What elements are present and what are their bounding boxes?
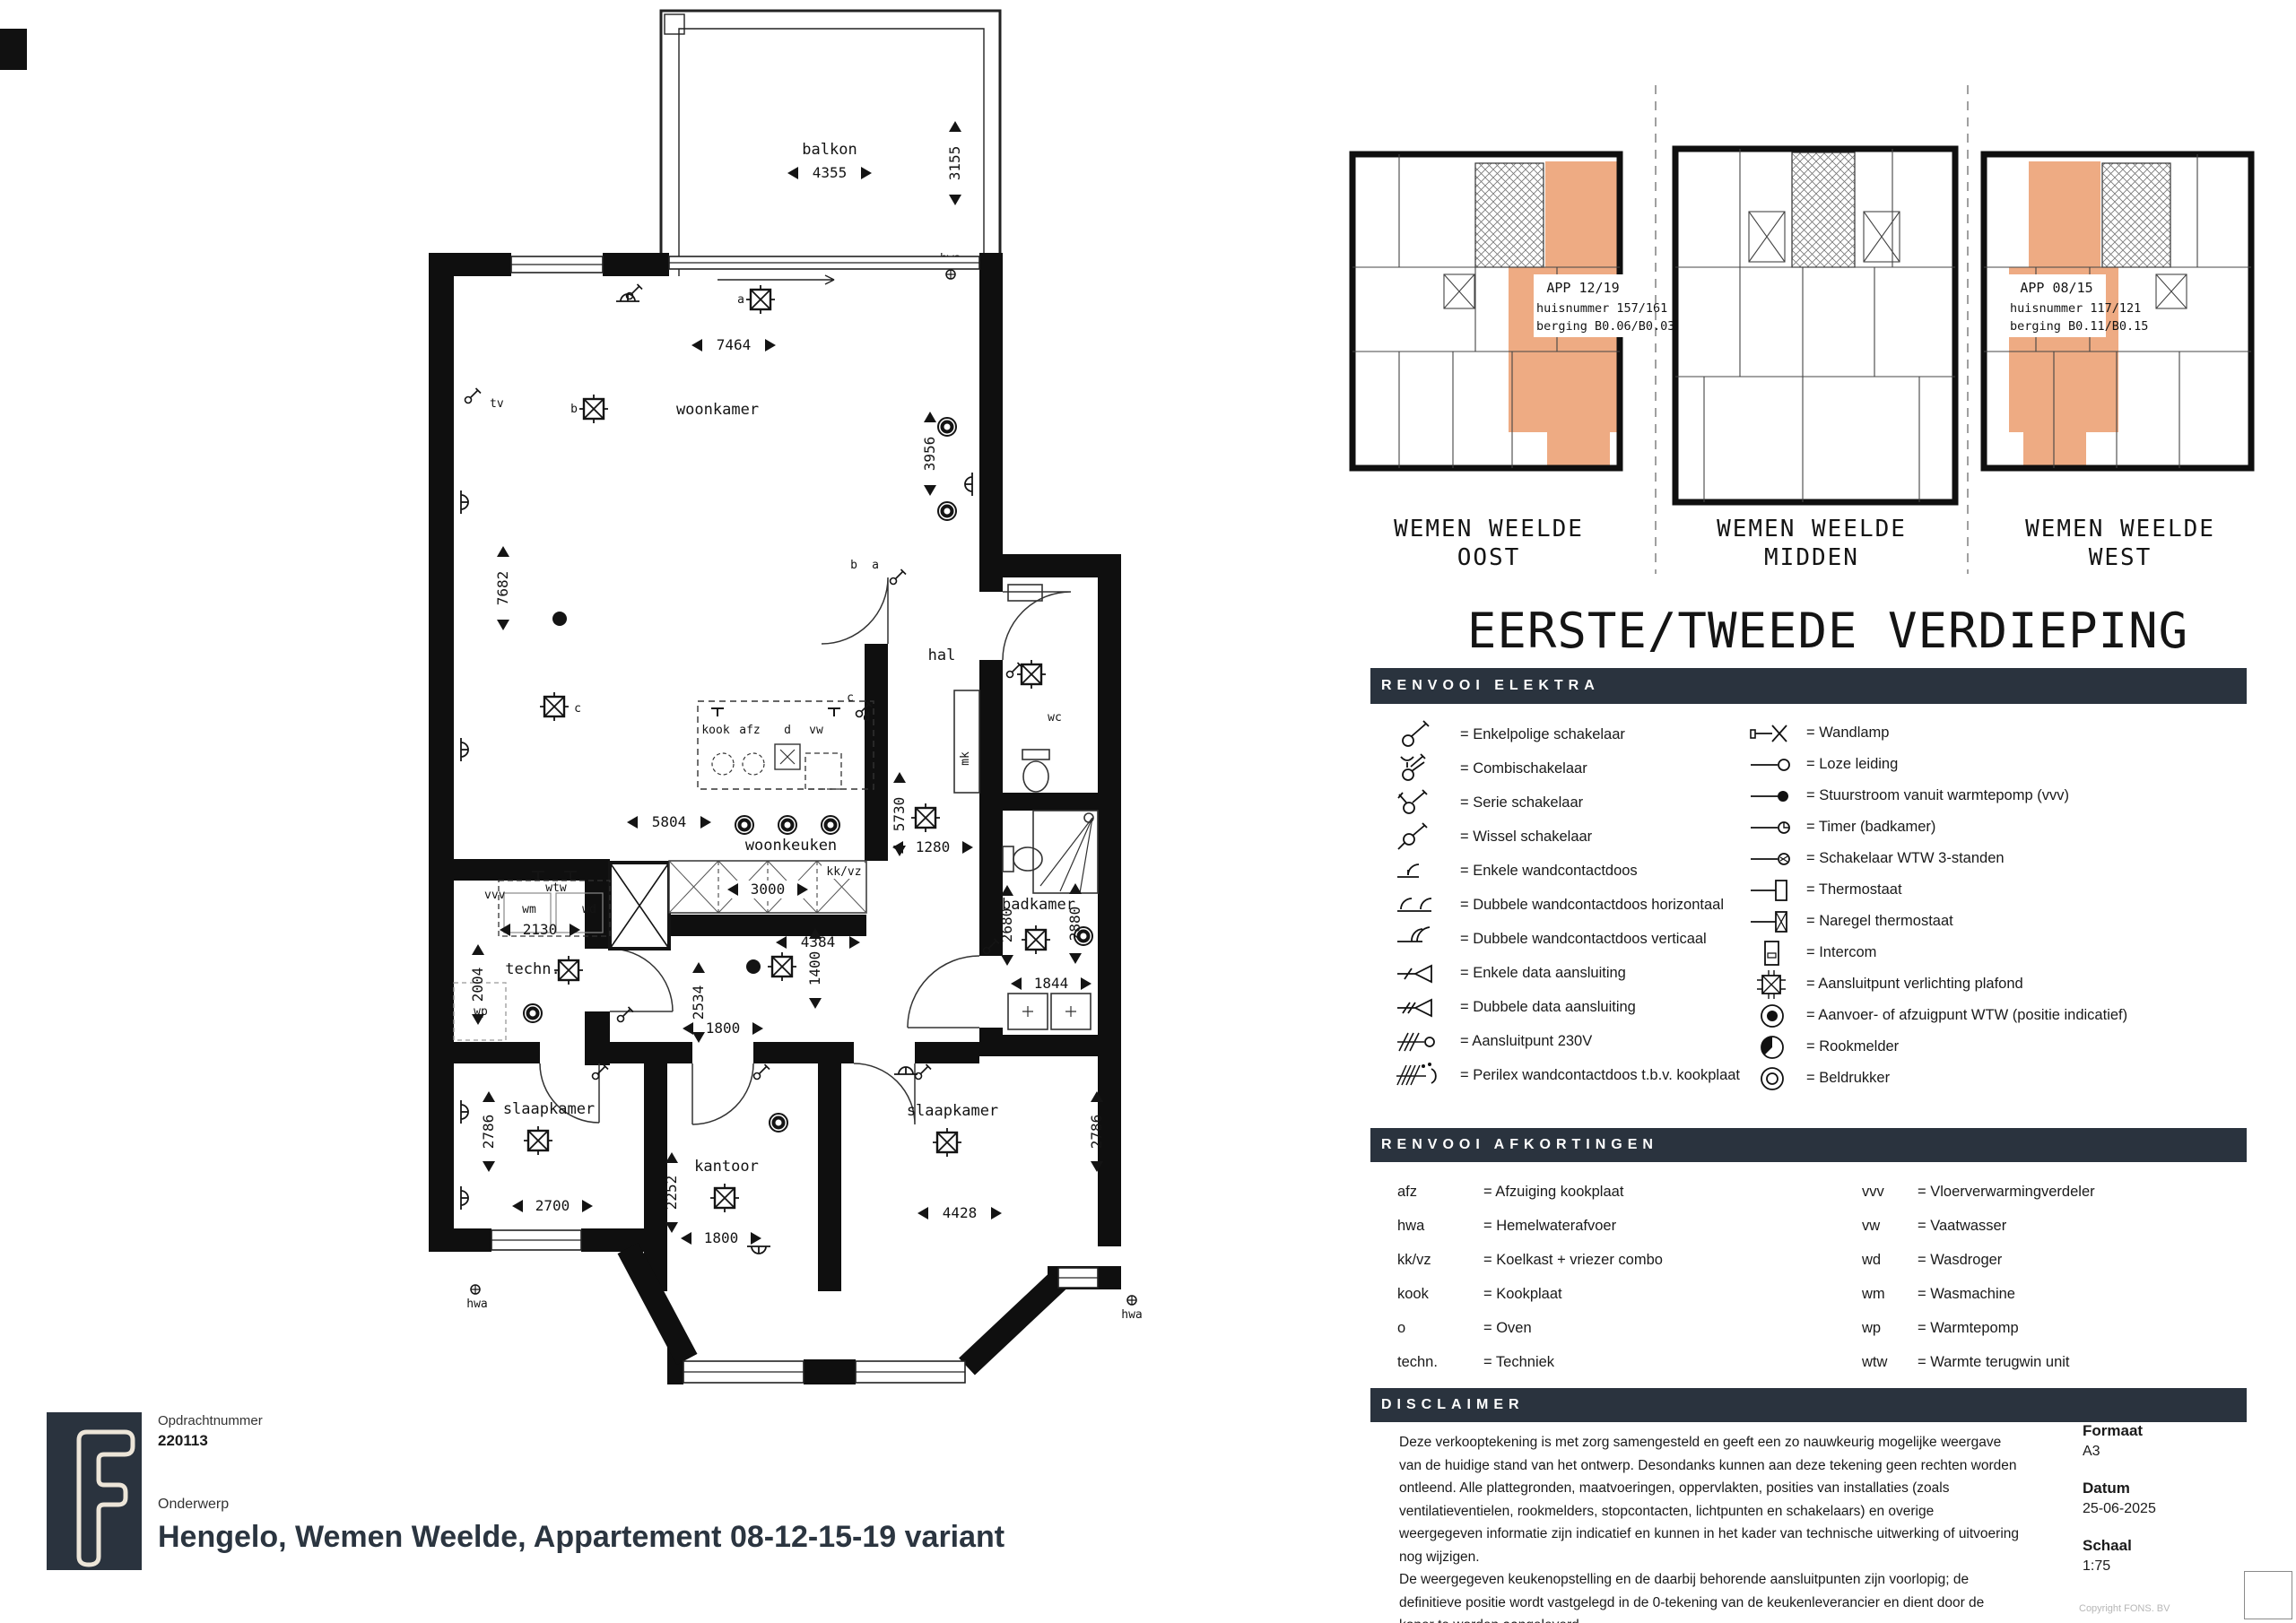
- dim-value: 3155: [946, 146, 963, 181]
- legend-label: = Thermostaat: [1806, 881, 1902, 898]
- section-label-midden-2: MIDDEN: [1764, 544, 1859, 571]
- abbr-row: hwa= Hemelwaterafvoer: [1370, 1209, 1663, 1243]
- room-label-kantoor: kantoor: [694, 1158, 759, 1176]
- section-label-oost-2: OOST: [1457, 544, 1521, 571]
- label-wtw: wtw: [545, 881, 567, 895]
- legend-label: = Intercom: [1806, 944, 1876, 961]
- label-kook: kook: [701, 724, 729, 737]
- label-hwa-right: hwa: [1121, 1308, 1142, 1322]
- legend-row: = Dubbele data aansluiting: [1370, 990, 1740, 1024]
- legend-row: = Timer (badkamer): [1749, 811, 2127, 843]
- letter-b2: b: [850, 559, 857, 572]
- schakelaar-wtw-icon: [1749, 844, 1796, 874]
- abbr-meaning: = Koelkast + vriezer combo: [1483, 1252, 1663, 1269]
- legend-label: = Dubbele data aansluiting: [1460, 999, 1636, 1016]
- abbr-row: vw= Vaatwasser: [1862, 1209, 2095, 1243]
- disclaimer-paragraph-1: Deze verkooptekening is met zorg samenge…: [1399, 1431, 2020, 1568]
- dim-value: 2786: [1088, 1115, 1105, 1150]
- abbr-row: wp= Warmtepomp: [1862, 1311, 2095, 1345]
- room-label-wc: wc: [1048, 711, 1062, 725]
- company-logo: [47, 1412, 142, 1570]
- label-d: d: [784, 724, 791, 737]
- legend-row: = Aansluitpunt 230V: [1370, 1024, 1740, 1058]
- rookmelder-icon: [1749, 1032, 1796, 1063]
- dim-value: 2130: [523, 921, 558, 938]
- abbr: hwa: [1370, 1218, 1483, 1235]
- shaft: [610, 863, 669, 949]
- dim-balkon-h: 3155: [946, 121, 963, 205]
- meterkast: [954, 690, 979, 793]
- legend-label: = Loze leiding: [1806, 756, 1898, 773]
- legend-afkortingen-body: afz= Afzuiging kookplaat hwa= Hemelwater…: [1370, 1175, 2247, 1381]
- letter-c: c: [574, 702, 581, 716]
- abbr-row: vvv= Vloerverwarmingverdeler: [1862, 1175, 2095, 1209]
- opdrachtnummer-value: 220113: [158, 1432, 1004, 1450]
- legend-label: = Aansluitpunt verlichting plafond: [1806, 976, 2023, 993]
- section-label-oost-1: WEMEN WEELDE: [1394, 516, 1584, 542]
- dim-value: 2680: [998, 908, 1015, 943]
- label-wm: wm: [522, 903, 536, 916]
- dim-value: 1280: [916, 838, 951, 855]
- abbr-row: techn.= Techniek: [1370, 1345, 1663, 1379]
- block-oost: APP 12/19 huisnummer 157/161 berging B0.…: [1352, 154, 1674, 468]
- dim-balkon-w: 4355: [787, 164, 872, 181]
- block-west: APP 08/15 huisnummer 117/121 berging B0.…: [1984, 154, 2251, 468]
- afkortingen-left: afz= Afzuiging kookplaat hwa= Hemelwater…: [1370, 1175, 1663, 1379]
- legend-label: = Serie schakelaar: [1460, 794, 1583, 811]
- afkortingen-right: vvv= Vloerverwarmingverdeler vw= Vaatwas…: [1862, 1175, 2095, 1379]
- label-afz: afz: [739, 724, 760, 737]
- label-hwa-left: hwa: [466, 1298, 487, 1311]
- legend-label: = Dubbele wandcontactdoos verticaal: [1460, 931, 1707, 948]
- legend-afkortingen-header: RENVOOI AFKORTINGEN: [1370, 1128, 2247, 1162]
- disclaimer-header: DISCLAIMER: [1370, 1388, 2247, 1422]
- legend-row: = Wandlamp: [1749, 717, 2127, 749]
- logo-f-icon: [47, 1412, 142, 1570]
- label-wd: wd: [582, 903, 596, 916]
- enkele-wandcontactdoos-icon: [1396, 855, 1448, 886]
- copyright: Copyright FONS. BV: [2079, 1603, 2170, 1614]
- aansluitpunt-230v-icon: [1396, 1026, 1448, 1056]
- wissel-schakelaar-icon: [1396, 821, 1448, 852]
- abbr-meaning: = Oven: [1483, 1320, 1532, 1337]
- building-overview: APP 12/19 huisnummer 157/161 berging B0.…: [1352, 85, 2251, 659]
- dim-value: 1800: [706, 1020, 741, 1037]
- dim-value: 4355: [813, 164, 848, 181]
- legend-row: = Loze leiding: [1749, 749, 2127, 780]
- legend-row: = Rookmelder: [1749, 1031, 2127, 1063]
- abbr: wp: [1862, 1320, 1918, 1337]
- dubbele-data-aansluiting-icon: [1396, 992, 1448, 1022]
- legend-label: = Dubbele wandcontactdoos horizontaal: [1460, 897, 1724, 914]
- dim-value: 3000: [751, 881, 786, 898]
- hwa-drain-icon: [1127, 1296, 1136, 1305]
- stuurstroom-warmtepomp-icon: [1749, 781, 1796, 811]
- legend-label: = Schakelaar WTW 3-standen: [1806, 850, 2005, 867]
- room-label-woonkeuken: woonkeuken: [745, 837, 837, 855]
- legend-row: = Aanvoer- of afzuigpunt WTW (positie in…: [1749, 1000, 2127, 1031]
- thermostaat-icon: [1749, 875, 1796, 906]
- letter-c2: c: [847, 691, 854, 705]
- block-midden: [1675, 149, 1955, 502]
- dim-value: 5730: [891, 797, 908, 832]
- section-label-midden-1: WEMEN WEELDE: [1717, 516, 1907, 542]
- abbr: kook: [1370, 1286, 1483, 1303]
- abbr-row: wtw= Warmte terugwin unit: [1862, 1345, 2095, 1379]
- room-label-woonkamer: woonkamer: [676, 401, 759, 419]
- legend-row: = Naregel thermostaat: [1749, 906, 2127, 937]
- app-huisnummer: huisnummer 117/121: [2010, 301, 2141, 316]
- dim-value: 1400: [806, 951, 823, 986]
- tap-icon: [711, 708, 724, 716]
- abbr-meaning: = Warmtepomp: [1918, 1320, 2019, 1337]
- legend-row: = Enkele wandcontactdoos: [1370, 854, 1740, 888]
- section-label-west-2: WEST: [2089, 544, 2152, 571]
- legend-elektra-header: RENVOOI ELEKTRA: [1370, 668, 2247, 704]
- legend-row: = Serie schakelaar: [1370, 785, 1740, 820]
- legend-row: = Enkele data aansluiting: [1370, 956, 1740, 990]
- abbr-meaning: = Vaatwasser: [1918, 1218, 2006, 1235]
- app-huisnummer: huisnummer 157/161: [1536, 301, 1667, 316]
- legend-label: = Naregel thermostaat: [1806, 913, 1953, 930]
- app-berging: berging B0.06/B0.03: [1536, 319, 1674, 334]
- wc-fixtures: [1008, 585, 1049, 792]
- dim-value: 1844: [1034, 975, 1069, 992]
- dubbele-wandcontactdoos-horizontaal-icon: [1396, 890, 1448, 920]
- dim-value: 1800: [704, 1229, 739, 1246]
- abbr-row: kk/vz= Koelkast + vriezer combo: [1370, 1243, 1663, 1277]
- intercom-icon: [1749, 938, 1796, 968]
- abbr: vw: [1862, 1218, 1918, 1235]
- legend-label: = Timer (badkamer): [1806, 819, 1935, 836]
- legend-elektra-body: = Enkelpolige schakelaar = Combischakela…: [1370, 717, 2247, 1103]
- room-label-slaapkamer-left: slaapkamer: [503, 1100, 595, 1118]
- dim-value: 2880: [1066, 907, 1083, 942]
- schaal-label: Schaal: [2083, 1537, 2280, 1555]
- onderwerp-value: Hengelo, Wemen Weelde, Appartement 08-12…: [158, 1520, 1004, 1555]
- legend-row: = Aansluitpunt verlichting plafond: [1749, 968, 2127, 1000]
- room-label-slaapkamer-right: slaapkamer: [907, 1102, 998, 1120]
- onderwerp-label: Onderwerp: [158, 1497, 1004, 1513]
- dim-value: 2786: [480, 1115, 497, 1150]
- abbr-meaning: = Vloerverwarmingverdeler: [1918, 1184, 2095, 1201]
- opdrachtnummer-label: Opdrachtnummer: [158, 1413, 1004, 1428]
- abbr-meaning: = Techniek: [1483, 1354, 1554, 1371]
- timer-badkamer-icon: [1749, 812, 1796, 843]
- legend-elektra-title: RENVOOI ELEKTRA: [1381, 678, 1600, 694]
- badkamer-fixtures: [1003, 811, 1098, 1029]
- wall-diagonal-right: [967, 1280, 1058, 1367]
- wandlamp-icon: [1749, 718, 1796, 749]
- abbr: afz: [1370, 1184, 1483, 1201]
- kitchen: kook afz d vw: [698, 701, 874, 789]
- title-block: Opdrachtnummer 220113 Onderwerp Hengelo,…: [158, 1413, 1004, 1555]
- abbr-meaning: = Hemelwaterafvoer: [1483, 1218, 1616, 1235]
- disclaimer-title: DISCLAIMER: [1381, 1397, 1525, 1413]
- legend-elektra-left: = Enkelpolige schakelaar = Combischakela…: [1370, 717, 1740, 1092]
- perilex-wandcontactdoos-icon: [1396, 1060, 1448, 1090]
- legend-row: = Intercom: [1749, 937, 2127, 968]
- dim-value: 3956: [921, 437, 938, 472]
- abbr: wtw: [1862, 1354, 1918, 1371]
- app-berging: berging B0.11/B0.15: [2010, 319, 2148, 334]
- legend-label: = Wandlamp: [1806, 725, 1889, 742]
- abbr-row: wd= Wasdroger: [1862, 1243, 2095, 1277]
- legend-label: = Enkele data aansluiting: [1460, 965, 1626, 982]
- loze-leiding-icon: [1749, 750, 1796, 780]
- abbr-row: afz= Afzuiging kookplaat: [1370, 1175, 1663, 1209]
- enkelpolige-schakelaar-icon: [1396, 719, 1448, 750]
- legend-row: = Wissel schakelaar: [1370, 820, 1740, 854]
- formaat-label: Formaat: [2083, 1422, 2280, 1440]
- drawing-sheet: balkon 4355 3155 hwa: [0, 0, 2296, 1623]
- abbr: techn.: [1370, 1354, 1483, 1371]
- legend-row: = Thermostaat: [1749, 874, 2127, 906]
- legend-row: = Enkelpolige schakelaar: [1370, 717, 1740, 751]
- frame-corner-box: [2244, 1571, 2292, 1619]
- room-label-balkon: balkon: [802, 141, 857, 159]
- formaat-value: A3: [2083, 1444, 2280, 1460]
- section-label-west-1: WEMEN WEELDE: [2025, 516, 2215, 542]
- letter-a2: a: [872, 559, 879, 572]
- abbr: kk/vz: [1370, 1252, 1483, 1269]
- dim-value: 4428: [943, 1204, 978, 1221]
- legend-label: = Perilex wandcontactdoos t.b.v. kookpla…: [1460, 1067, 1740, 1084]
- legend-elektra-right: = Wandlamp = Loze leiding = Stuurstroom …: [1749, 717, 2127, 1094]
- label-tv: tv: [490, 397, 504, 411]
- letter-d2: d: [863, 711, 870, 725]
- datum-label: Datum: [2083, 1480, 2280, 1497]
- legend-row: = Beldrukker: [1749, 1063, 2127, 1094]
- room-label-mk: mk: [959, 751, 972, 766]
- abbr-row: o= Oven: [1370, 1311, 1663, 1345]
- ceiling-point-icons: [524, 285, 1050, 1212]
- combischakelaar-icon: [1396, 753, 1448, 784]
- floor-title: EERSTE/TWEEDE VERDIEPING: [1467, 603, 2188, 659]
- abbr: vvv: [1862, 1184, 1918, 1201]
- abbr-row: wm= Wasmachine: [1862, 1277, 2095, 1311]
- abbr: o: [1370, 1320, 1483, 1337]
- label-vvv: vvv: [484, 889, 506, 902]
- disclaimer-text: Deze verkooptekening is met zorg samenge…: [1399, 1431, 2020, 1623]
- app-number: APP 12/19: [1546, 280, 1619, 296]
- legend-label: = Rookmelder: [1806, 1038, 1899, 1055]
- dim-value: 2004: [469, 968, 486, 1002]
- hwa-drain-icon: [471, 1285, 480, 1294]
- abbr-meaning: = Wasmachine: [1918, 1286, 2015, 1303]
- serie-schakelaar-icon: [1396, 787, 1448, 818]
- app-number: APP 08/15: [2020, 280, 2092, 296]
- legend-row: = Dubbele wandcontactdoos horizontaal: [1370, 888, 1740, 922]
- room-label-hal: hal: [928, 647, 956, 664]
- legend-afkortingen-title: RENVOOI AFKORTINGEN: [1381, 1137, 1658, 1153]
- legend-row: = Perilex wandcontactdoos t.b.v. kookpla…: [1370, 1058, 1740, 1092]
- dim-value: 7682: [494, 571, 511, 606]
- walls: [429, 253, 1121, 1384]
- sheet-info: Formaat A3 Datum 25-06-2025 Schaal 1:75: [2083, 1422, 2280, 1575]
- datum-value: 25-06-2025: [2083, 1501, 2280, 1517]
- beldrukker-icon: [1749, 1063, 1796, 1094]
- dim-value: 2534: [690, 985, 707, 1020]
- dim-value: 2252: [663, 1176, 680, 1211]
- wtw-punt-icon: [1749, 1001, 1796, 1031]
- room-label-techn: techn.: [505, 960, 560, 978]
- enkele-data-aansluiting-icon: [1396, 958, 1448, 988]
- legend-row: = Schakelaar WTW 3-standen: [1749, 843, 2127, 874]
- dim-value: 7464: [717, 336, 752, 353]
- abbr-meaning: = Wasdroger: [1918, 1252, 2002, 1269]
- abbr: wd: [1862, 1252, 1918, 1269]
- abbr-meaning: = Kookplaat: [1483, 1286, 1562, 1303]
- abbr: wm: [1862, 1286, 1918, 1303]
- dubbele-wandcontactdoos-verticaal-icon: [1396, 924, 1448, 954]
- abbr-row: kook= Kookplaat: [1370, 1277, 1663, 1311]
- disclaimer-paragraph-2: De weergegeven keukenopstelling en de da…: [1399, 1568, 2020, 1623]
- legend-row: = Dubbele wandcontactdoos verticaal: [1370, 922, 1740, 956]
- legend-label: = Enkelpolige schakelaar: [1460, 726, 1625, 743]
- legend-label: = Enkele wandcontactdoos: [1460, 863, 1638, 880]
- aansluitpunt-verlichting-plafond-icon: [1749, 969, 1796, 1000]
- abbr-meaning: = Warmte terugwin unit: [1918, 1354, 2070, 1371]
- legend-label: = Beldrukker: [1806, 1070, 1890, 1087]
- legend-row: = Stuurstroom vanuit warmtepomp (vvv): [1749, 780, 2127, 811]
- letter-a: a: [737, 293, 744, 307]
- tap-icon: [828, 708, 840, 716]
- legend-row: = Combischakelaar: [1370, 751, 1740, 785]
- legend-label: = Stuurstroom vanuit warmtepomp (vvv): [1806, 787, 2069, 804]
- legend-label: = Aanvoer- of afzuigpunt WTW (positie in…: [1806, 1007, 2127, 1024]
- label-vw: vw: [809, 724, 823, 737]
- naregel-thermostaat-icon: [1749, 907, 1796, 937]
- label-kkvz: kk/vz: [826, 865, 861, 879]
- dim-value: 5804: [652, 813, 687, 830]
- legend-label: = Combischakelaar: [1460, 760, 1587, 777]
- dim-value: 2700: [535, 1197, 570, 1214]
- legend-label: = Wissel schakelaar: [1460, 829, 1592, 846]
- legend-label: = Aansluitpunt 230V: [1460, 1033, 1592, 1050]
- apartment-floorplan: balkon 4355 3155 hwa: [429, 11, 1143, 1384]
- abbr-meaning: = Afzuiging kookplaat: [1483, 1184, 1623, 1201]
- letter-b: b: [570, 403, 578, 416]
- hwa-drain-icon: [946, 270, 955, 279]
